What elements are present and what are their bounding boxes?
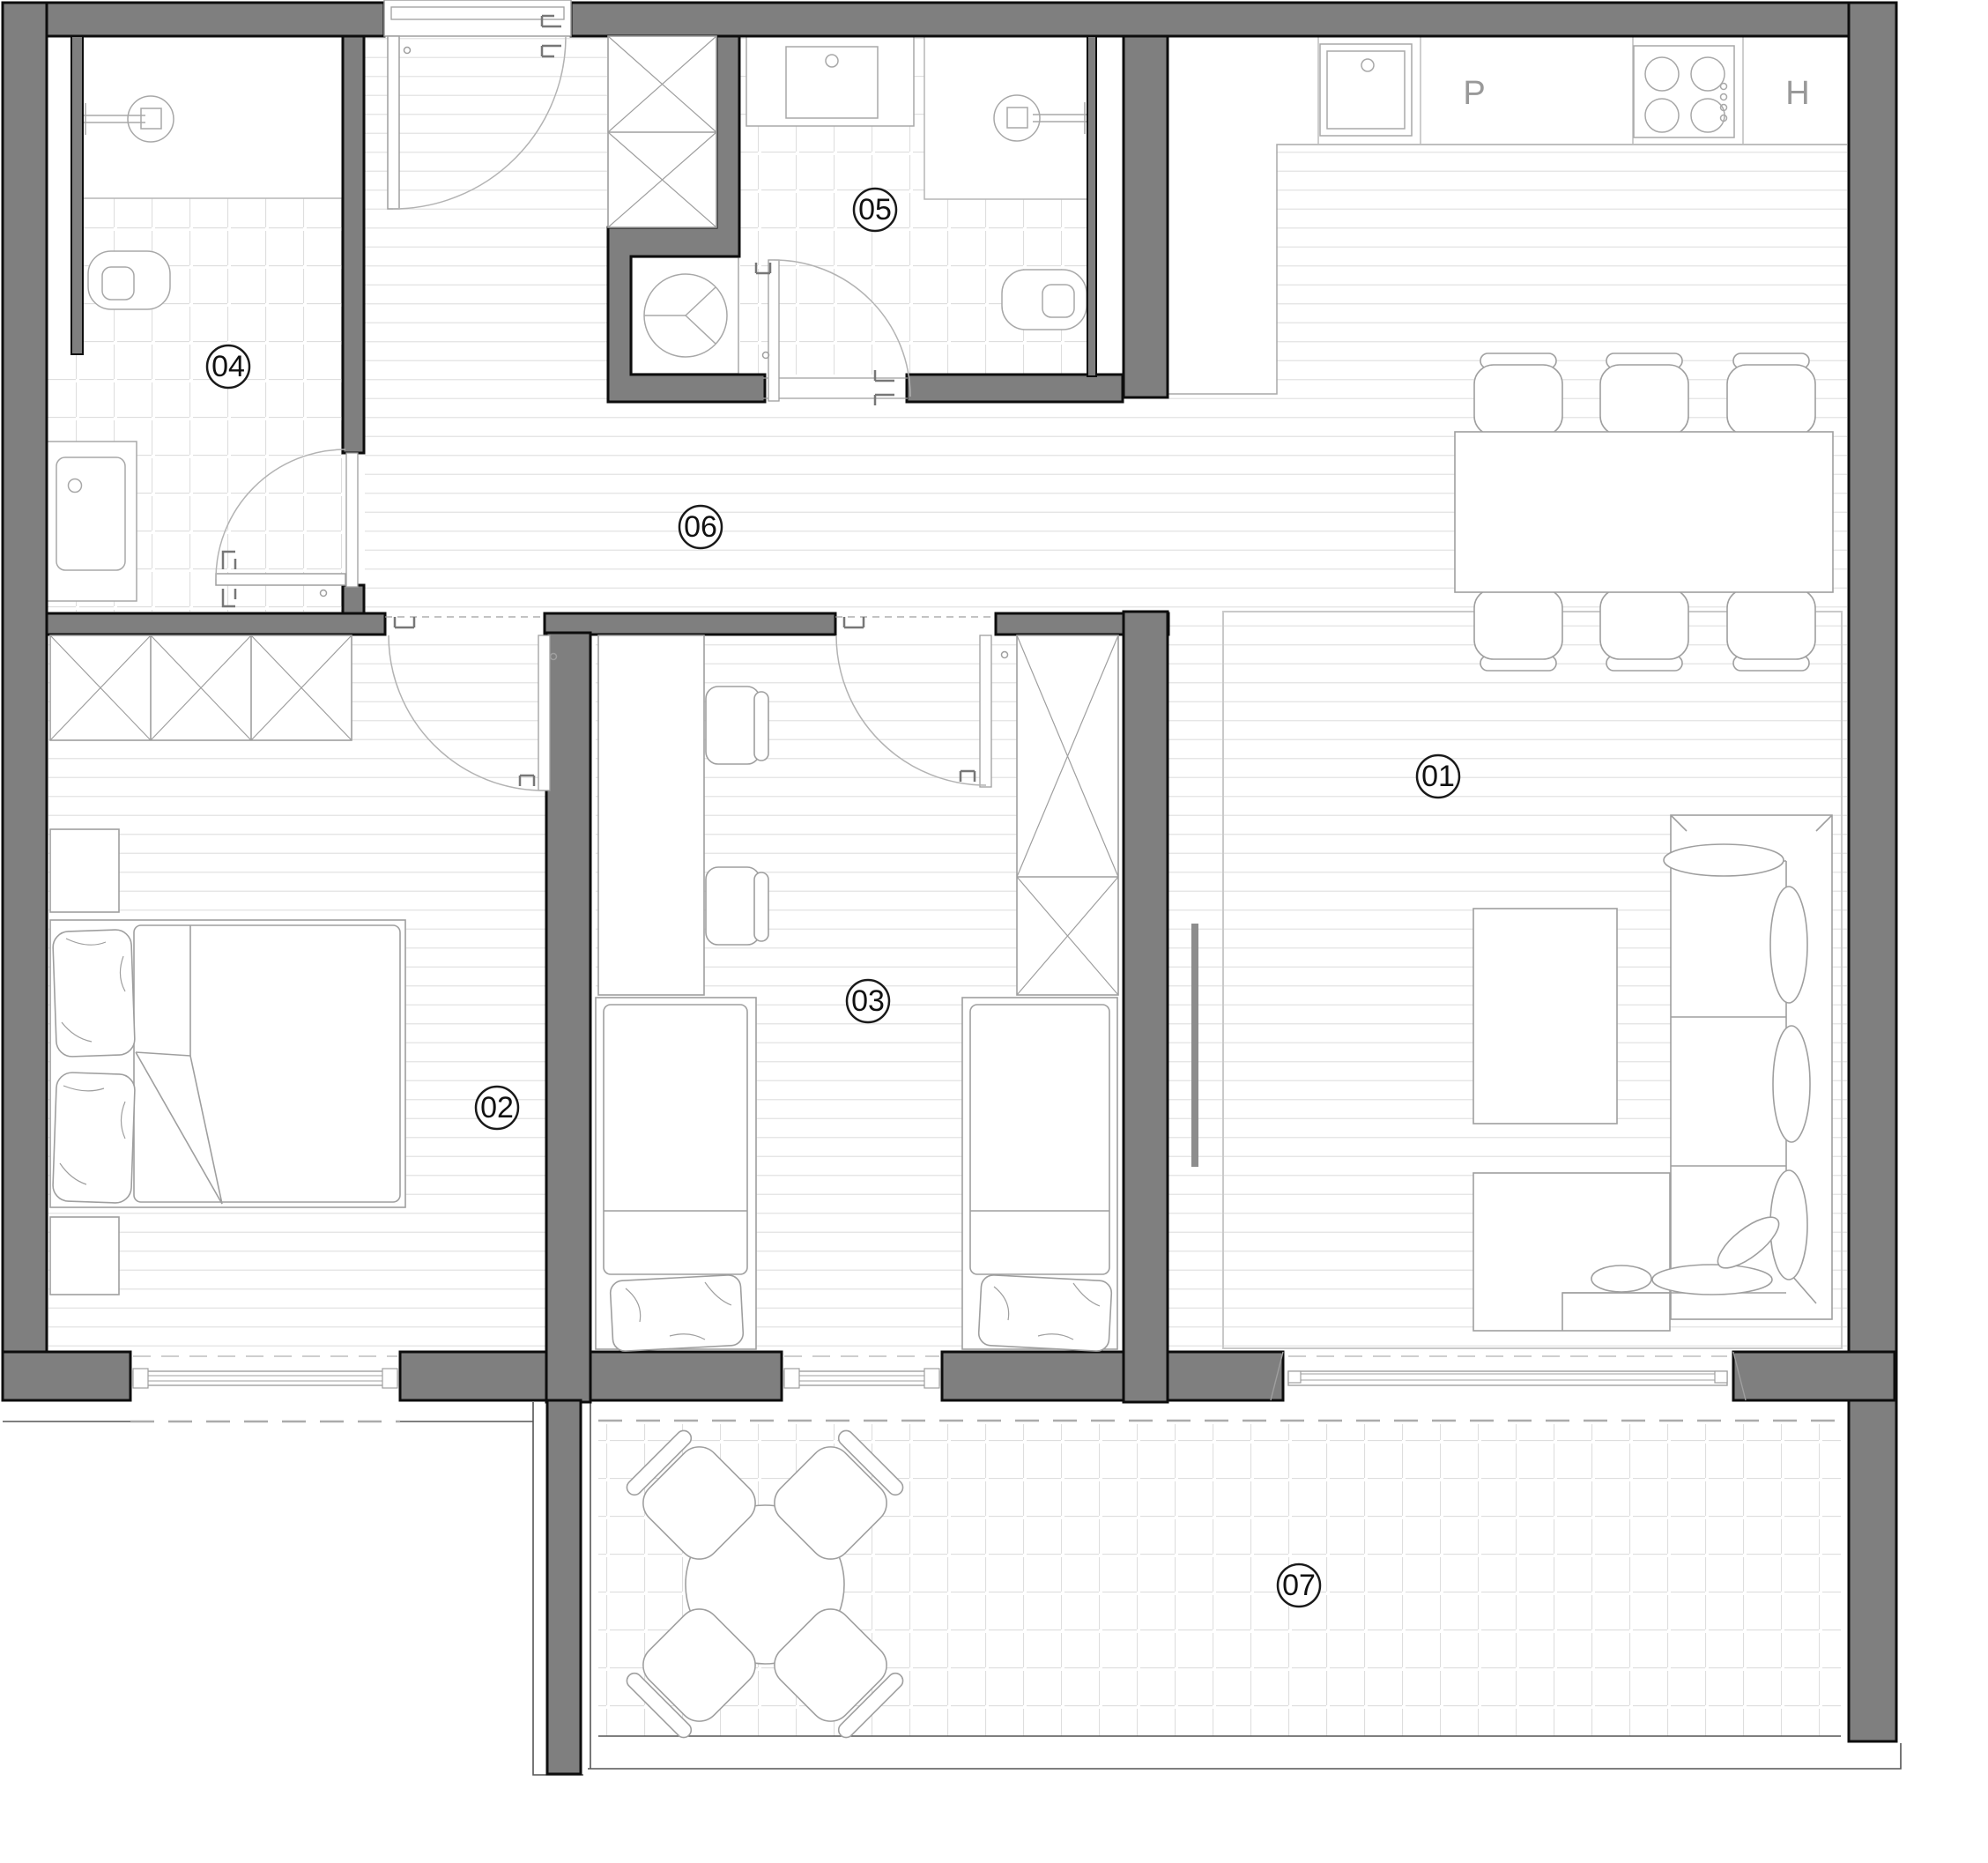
svg-text:03: 03 [851, 984, 885, 1018]
svg-text:07: 07 [1282, 1569, 1316, 1602]
svg-text:H: H [1785, 75, 1809, 112]
svg-text:05: 05 [858, 193, 892, 226]
svg-text:01: 01 [1421, 760, 1455, 793]
svg-text:06: 06 [684, 510, 717, 544]
svg-text:P: P [1463, 75, 1485, 112]
svg-text:02: 02 [480, 1091, 514, 1124]
svg-text:04: 04 [211, 350, 245, 383]
